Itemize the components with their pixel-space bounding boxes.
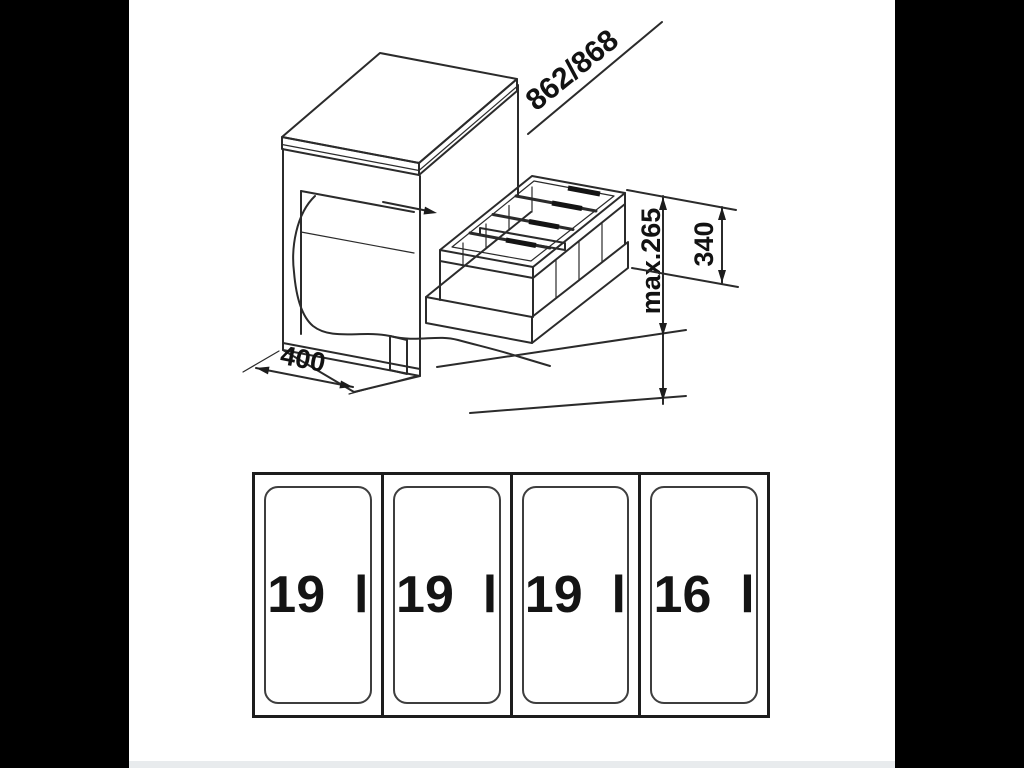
pullout-bin-unit (426, 176, 628, 343)
worktop (282, 53, 517, 175)
dimension-max265: max.265 (636, 196, 667, 404)
bin-2-capacity-label: 19 l (396, 565, 497, 625)
dim-label-340: 340 (689, 221, 719, 266)
bin-compartment-2: 19 l (381, 475, 510, 715)
bin-3-outline: 19 l (522, 486, 630, 704)
bin-plan-view: 19 l 19 l 19 l 16 l (252, 472, 770, 718)
dimension-862-868: 862/868 (520, 22, 662, 134)
dim-label-862-868: 862/868 (520, 23, 625, 117)
bin-4-outline: 16 l (650, 486, 758, 704)
bin-2-outline: 19 l (393, 486, 501, 704)
cabinet-cord (293, 196, 550, 366)
dim-label-max265: max.265 (636, 208, 666, 315)
slide-rail (480, 228, 565, 250)
bin-1-capacity-label: 19 l (267, 565, 368, 625)
dim-label-400: 400 (278, 340, 328, 378)
plinth-base (390, 330, 686, 413)
screenshot-root: { "page": { "background": "#000000", "ca… (0, 0, 1024, 768)
bin-compartment-4: 16 l (638, 475, 767, 715)
bin-compartment-1: 19 l (255, 475, 381, 715)
bin-4-capacity-label: 16 l (654, 565, 755, 625)
bin-compartment-3: 19 l (510, 475, 639, 715)
bin-1-outline: 19 l (264, 486, 372, 704)
bin-3-capacity-label: 19 l (525, 565, 626, 625)
